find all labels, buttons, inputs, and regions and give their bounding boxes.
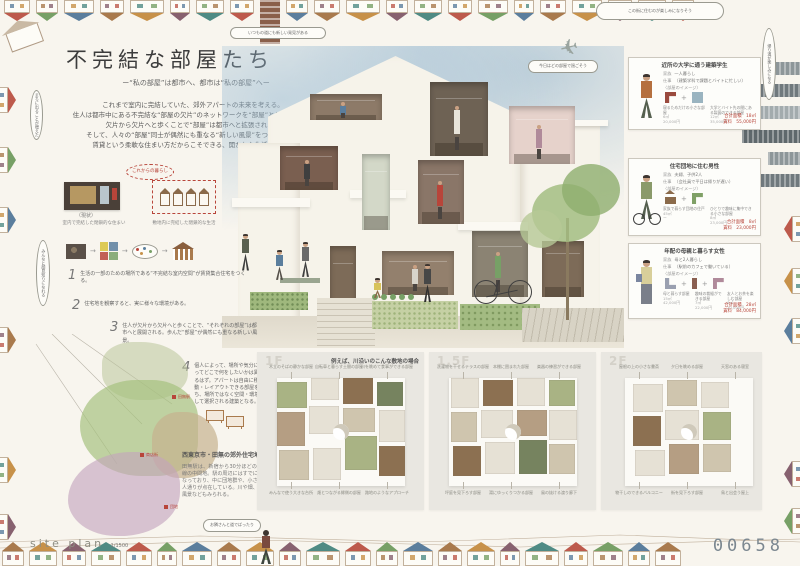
- palette-dot: [136, 248, 139, 251]
- mini-house-icon: [160, 188, 170, 206]
- person-body: [454, 110, 460, 134]
- room-piece-glyph: [665, 278, 676, 289]
- house-body: [346, 0, 380, 13]
- house-window: [15, 555, 19, 560]
- note-leader-line: [735, 372, 736, 379]
- house-body: [0, 207, 8, 233]
- room-shelf-line: [317, 100, 375, 101]
- main-illustration: [222, 46, 624, 348]
- border-side-house: [778, 212, 800, 242]
- attribute-value: （会社員で平日は帰りが遅い）: [674, 179, 733, 185]
- house-window: [641, 555, 645, 560]
- house-window: [46, 555, 51, 560]
- house-window: [1, 333, 5, 337]
- house-window: [671, 555, 675, 560]
- house-window: [1, 463, 5, 467]
- site-marker-dot: [172, 395, 176, 399]
- house-window: [569, 555, 573, 560]
- house-window: [202, 4, 207, 8]
- site-marker-label: 商店街: [146, 452, 158, 458]
- diagram-room-bed: [100, 186, 109, 204]
- house-window: [169, 555, 172, 560]
- doodle-leg: [208, 420, 209, 423]
- note-leader-line: [511, 482, 512, 489]
- attribute-value: 一人暮らし: [674, 71, 695, 77]
- house-window: [1, 473, 5, 477]
- house-body: [126, 551, 152, 566]
- courtyard-person: [372, 278, 383, 296]
- house-window: [512, 555, 515, 560]
- persona-title: 住宅団地に住む男性: [629, 162, 760, 170]
- house-roof: [314, 13, 340, 21]
- house-window: [7, 555, 11, 560]
- house-window: [77, 555, 81, 560]
- persona-figure: [635, 175, 659, 221]
- mini-house-roof: [199, 188, 209, 193]
- house-window: [590, 4, 595, 8]
- person-legs: [302, 261, 309, 277]
- house-window: [1, 103, 5, 107]
- house-window: [796, 334, 800, 338]
- house-body: [4, 0, 30, 13]
- room-pieces-row: ++: [665, 278, 724, 289]
- total-rent: 賃料 55,000円: [723, 120, 756, 126]
- house-window: [519, 4, 522, 8]
- house-window: [175, 4, 178, 8]
- plan-stair-core: [505, 424, 521, 440]
- house-roof: [8, 87, 16, 113]
- house-window: [796, 222, 800, 226]
- persona-title: 近所の大学に通う建築学生: [629, 61, 760, 69]
- house-body: [655, 551, 681, 566]
- note-leader-line: [463, 482, 464, 489]
- mini-house-icon: [186, 188, 196, 206]
- house-roof: [8, 327, 16, 353]
- person-torso: [302, 247, 309, 261]
- diagram-closed-room: [64, 182, 120, 210]
- figure-torso: [641, 267, 652, 284]
- potted-plant: [399, 294, 405, 300]
- house-body: [628, 551, 650, 566]
- house-window: [532, 555, 538, 560]
- plan-room: [343, 378, 373, 404]
- house-window: [796, 324, 800, 328]
- house-window: [556, 4, 560, 8]
- plan-room: [635, 450, 665, 476]
- house-roof: [346, 13, 380, 21]
- entry-number: 00658: [713, 536, 784, 556]
- room-shelf-line: [516, 119, 569, 120]
- house-body: [0, 147, 8, 173]
- note-leader-line: [687, 372, 688, 379]
- person-legs: [438, 207, 442, 219]
- courtyard-person: [240, 234, 251, 272]
- house-body: [525, 551, 559, 566]
- speech-bubble-left-top: まちに出ることが増えた: [30, 90, 43, 140]
- house-body: [0, 87, 8, 113]
- attribute-label: 家族: [663, 71, 671, 77]
- plan-note: 本棚に囲まれた部屋: [485, 364, 537, 369]
- mini-house-body: [173, 193, 183, 206]
- interior-room: [509, 106, 575, 164]
- bench: [280, 278, 320, 283]
- border-side-house: [0, 457, 22, 487]
- mini-house-icon: [173, 188, 183, 206]
- plan-room: [517, 410, 547, 436]
- house-body: [0, 514, 8, 540]
- step-text: 生活の一部のための場所である“不完結な室内空間”が賃貸集合住宅をつくる。: [80, 268, 248, 286]
- house-roof: [467, 542, 495, 551]
- house-body: [438, 551, 462, 566]
- house-window: [361, 555, 365, 560]
- person-legs: [537, 149, 541, 159]
- border-side-house: [0, 327, 22, 357]
- house-window: [109, 555, 114, 560]
- figure-legs: [641, 284, 652, 304]
- plan-room: [485, 442, 515, 474]
- persona-totals: 合計面積 8㎡賃料 23,000円: [723, 220, 756, 232]
- persona-title: 年配の母親と暮らす女性: [629, 247, 760, 255]
- border-side-house: [0, 87, 22, 117]
- house-body: [514, 0, 534, 13]
- plan-note: 街を見下ろす部屋: [661, 490, 713, 495]
- site-marker: 田無駅: [172, 394, 190, 400]
- house-window: [327, 555, 333, 560]
- house-window: [105, 4, 109, 8]
- attribute-label: 家族: [663, 257, 671, 263]
- house-window: [579, 555, 583, 560]
- border-side-house: [0, 147, 22, 177]
- furniture-doodle: [206, 410, 224, 421]
- house-window: [292, 555, 296, 560]
- floor-plan-panel-15f: 1.5F洗濯物を干せるテラスの部屋本棚に囲まれた部屋楽器の練習ができる部屋坪庭を…: [429, 352, 596, 510]
- site-plan-label: site plan 1/1500: [30, 537, 128, 550]
- border-side-house: [778, 457, 800, 487]
- mini-house-roof: [186, 188, 196, 193]
- site-marker: 商店街: [140, 452, 158, 458]
- step-item: 1生活の一部のための場所である“不完結な室内空間”が賃貸集合住宅をつくる。: [68, 268, 248, 286]
- plan-room: [379, 410, 405, 442]
- speech-bubble-house: いつもの道にも新しい発見がある: [230, 27, 326, 39]
- house-window: [443, 555, 447, 560]
- room-piece-glyph: [692, 278, 697, 289]
- house-roof: [306, 542, 340, 551]
- plan-note: 夕日を眺める部屋: [661, 364, 713, 369]
- house-body: [540, 0, 566, 13]
- house-sketch-body: [173, 249, 193, 260]
- speech-bubble-right-text: 帰り道が楽しみになる: [767, 44, 772, 84]
- person-body: [437, 185, 443, 206]
- house-window: [1, 153, 5, 157]
- total-area: 合計面積 28㎡: [723, 303, 756, 309]
- person-torso: [262, 536, 270, 548]
- plan-room: [519, 440, 547, 474]
- room-pieces-row: +: [665, 92, 703, 103]
- attribute-value: 夫婦、子供2人: [674, 172, 702, 178]
- house-body: [593, 551, 623, 566]
- persona-card: 住宅団地に住む男性家族夫婦、子供2人仕事（会社員で平日は帰りが遅い）〈部屋のイメ…: [628, 158, 761, 236]
- attribute-label: 仕事: [663, 179, 671, 185]
- border-skyscraper-icon: [758, 106, 800, 119]
- plan-note: 川を眺めて食事ができる部屋: [361, 364, 413, 369]
- plan-room: [279, 450, 309, 480]
- house-window: [611, 555, 616, 560]
- note-leader-line: [387, 372, 388, 379]
- house-window: [661, 555, 665, 560]
- person-torso: [424, 269, 431, 284]
- house-window: [796, 524, 800, 528]
- note-leader-line: [291, 482, 292, 489]
- cantilever-slab: [458, 222, 528, 230]
- deck-paving: [522, 308, 624, 342]
- total-rent: 賃料 84,000円: [723, 309, 756, 315]
- diagram-closed-site: [152, 180, 216, 214]
- house-body: [29, 551, 57, 566]
- note-leader-line: [559, 372, 560, 379]
- house-roof: [130, 13, 164, 21]
- total-rent: 賃料 23,000円: [723, 226, 756, 232]
- house-body: [792, 508, 800, 534]
- house-body: [448, 0, 472, 13]
- house-roof: [655, 542, 681, 551]
- house-roof: [593, 542, 623, 551]
- persona-attribute-row: 仕事（駅前のカフェで働いている）: [663, 264, 757, 270]
- house-window: [1, 530, 5, 534]
- house-roof: [540, 13, 566, 21]
- house-body: [478, 0, 508, 13]
- house-body: [792, 318, 800, 344]
- speech-bubble-left-top-text: まちに出ることが増えた: [34, 93, 39, 137]
- house-window: [546, 555, 552, 560]
- palette-diagram: [132, 244, 158, 259]
- house-window: [162, 555, 165, 560]
- room-piece-glyph: [665, 92, 676, 103]
- house-window: [463, 4, 467, 8]
- site-marker-label: 田無駅: [178, 394, 190, 400]
- house-window: [391, 4, 395, 8]
- house-window: [232, 555, 236, 560]
- plan-room: [451, 378, 479, 408]
- interior-person: [339, 102, 347, 118]
- house-window: [71, 4, 76, 8]
- doodle-leg: [221, 420, 222, 423]
- house-body: [64, 0, 94, 13]
- house-window: [526, 4, 529, 8]
- interior-person: [303, 160, 311, 186]
- house-window: [496, 4, 501, 8]
- room-furniture: [364, 216, 388, 230]
- room-piece-glyph: [692, 193, 703, 204]
- plan-note: 物干しのできるバルコニー: [613, 490, 665, 495]
- diagram-closed-room-caption: 室内で完結した閉鎖的な住まい: [56, 221, 132, 227]
- note-leader-line: [559, 482, 560, 489]
- floor-plan-drawing: [277, 378, 405, 486]
- room-piece-caption: 家族で暮らす団地の住戸45㎡ー: [663, 207, 707, 221]
- planter-bed: [250, 292, 308, 310]
- house-body: [376, 551, 398, 566]
- person-legs: [305, 179, 309, 187]
- floor-plan-panel-2f: 2F屋根の上の小さな書斎夕日を眺める部屋天窓のある寝室物干しのできるバルコニー街…: [601, 352, 762, 510]
- house-body: [0, 457, 8, 483]
- figure-torso: [641, 182, 652, 199]
- attribute-value: （建築学科で課題とバイトに忙しい）: [674, 78, 745, 84]
- house-body: [217, 551, 241, 566]
- house-roof: [478, 13, 508, 21]
- house-window: [420, 4, 425, 8]
- palette-dot: [149, 250, 152, 253]
- room-piece-glyph: [665, 193, 676, 204]
- border-skyscraper-icon: [768, 152, 800, 165]
- border-side-house: [778, 314, 800, 344]
- house-roof: [784, 318, 792, 344]
- house-body: [0, 327, 8, 353]
- room-image-label: 〈部屋のイメージ〉: [663, 85, 701, 91]
- house-window: [182, 4, 185, 8]
- room-piece-caption: 寝るためだけの小さな部屋6㎡20,000円: [663, 106, 707, 125]
- plan-room: [451, 412, 477, 442]
- house-window: [796, 274, 800, 278]
- interior-person: [436, 181, 444, 219]
- plan-room: [517, 378, 545, 406]
- note-leader-line: [687, 482, 688, 489]
- house-window: [410, 555, 415, 560]
- house-window: [82, 4, 87, 8]
- attribute-value: 母と2人暮らし: [674, 257, 702, 263]
- plan-note: 湯にゆっくりつかる部屋: [485, 490, 537, 495]
- room-shelf-line: [436, 98, 482, 99]
- house-roof: [8, 147, 16, 173]
- attribute-label: 仕事: [663, 264, 671, 270]
- site-marker-dot: [164, 505, 168, 509]
- plan-room: [379, 446, 405, 476]
- arrow-icon: →: [162, 247, 168, 255]
- courtyard-person: [300, 242, 311, 278]
- plan-room: [701, 382, 729, 408]
- plan-note: 風の抜ける渡り廊下: [533, 490, 585, 495]
- note-leader-line: [387, 482, 388, 489]
- house-body: [2, 551, 24, 566]
- floor-plan-panel-1f: 1F例えば、川沿いのこんな敷地の場合木立のそばの静かな部屋自転車と暮らす土間の部…: [257, 352, 424, 510]
- house-window: [299, 4, 303, 8]
- house-window: [222, 555, 226, 560]
- house-window: [41, 4, 45, 8]
- person-legs: [455, 137, 459, 150]
- note-leader-line: [639, 482, 640, 489]
- figure-hair: [643, 74, 650, 77]
- step1-diagram-row: →→→: [66, 238, 236, 264]
- plan-note: 畑とつながる縁側の部屋: [313, 490, 365, 495]
- plan-room: [311, 378, 339, 400]
- speech-bubble-top-right: この街に住むのが楽しみになりそう: [596, 2, 724, 20]
- plan-note: 自転車と暮らす土間の部屋: [313, 364, 365, 369]
- room-shelf-line: [333, 263, 354, 264]
- fragment-cell: [109, 252, 118, 261]
- house-roof: [514, 13, 534, 21]
- persona-totals: 合計面積 28㎡賃料 84,000円: [723, 303, 756, 315]
- house-window: [546, 4, 550, 8]
- persona-attribute-row: 仕事（会社員で平日は帰りが遅い）: [663, 179, 757, 185]
- house-window: [796, 514, 800, 518]
- tree-foliage: [520, 210, 562, 248]
- interior-person: [453, 106, 461, 150]
- plan-room: [345, 436, 377, 470]
- site-plan-scale: 1/1500: [111, 543, 129, 549]
- interior-room: [418, 160, 464, 224]
- plan-note: 坪庭を見下ろす部屋: [437, 490, 489, 495]
- house-window: [453, 4, 457, 8]
- house-body: [564, 551, 588, 566]
- room-shelf-line: [365, 171, 387, 172]
- note-leader-line: [291, 372, 292, 379]
- house-roof: [448, 13, 472, 21]
- figure-hair: [643, 175, 650, 178]
- fragment-cell: [100, 242, 109, 251]
- bicycle-icon: [474, 272, 532, 304]
- house-window: [320, 4, 324, 8]
- figure-bike-wheel: [649, 213, 661, 225]
- doodle-leg: [241, 426, 242, 429]
- person-legs: [341, 113, 345, 118]
- doodle-leg: [228, 426, 229, 429]
- house-window: [200, 555, 205, 560]
- house-body: [157, 551, 177, 566]
- persona-attribute-row: 家族母と2人暮らし: [663, 257, 757, 263]
- person-torso: [242, 239, 249, 253]
- room-image-label: 〈部屋のイメージ〉: [663, 271, 701, 277]
- house-roof: [8, 514, 16, 540]
- floor-plan-drawing: [449, 378, 577, 486]
- house-window: [600, 555, 605, 560]
- house-window: [245, 4, 249, 8]
- house-window: [137, 4, 143, 8]
- house-window: [381, 555, 385, 560]
- piece-price: 42,000円: [663, 301, 692, 306]
- plan-room: [313, 448, 341, 480]
- house-window: [151, 4, 157, 8]
- room-shelf-line: [546, 253, 580, 254]
- house-body: [792, 216, 800, 242]
- house-window: [505, 555, 508, 560]
- house-body: [286, 0, 308, 13]
- house-window: [284, 555, 288, 560]
- border-side-house: [778, 504, 800, 534]
- room-shelf-line: [286, 156, 332, 157]
- room-piece-glyph: [713, 278, 724, 289]
- interior-room: [382, 251, 454, 295]
- house-window: [313, 555, 319, 560]
- plus-icon: +: [681, 94, 687, 102]
- plan-room: [669, 444, 699, 474]
- persona-totals: 合計面積 18㎡賃料 55,000円: [723, 114, 756, 126]
- house-roof: [784, 508, 792, 534]
- persona-card: 近所の大学に通う建築学生家族一人暮らし仕事（建築学科で課題とバイトに忙しい）〈部…: [628, 57, 761, 130]
- diagram-closed-site-caption: 敷地内に完結した閉鎖的な生活: [146, 221, 222, 227]
- house-window: [579, 4, 584, 8]
- floor-plan-drawing: [625, 378, 753, 486]
- house-window: [1, 93, 5, 97]
- fragment-cell: [100, 252, 109, 261]
- persona-attribute-row: 家族夫婦、子供2人: [663, 172, 757, 178]
- house-window: [353, 4, 359, 8]
- piece-caption-text: 寝るためだけの小さな部屋: [663, 106, 707, 115]
- house-window: [330, 4, 334, 8]
- courtyard-person: [274, 250, 285, 280]
- house-roof: [386, 13, 408, 21]
- persona-card: 年配の母親と暮らす女性家族母と2人暮らし仕事（駅前のカフェで働いている）〈部屋の…: [628, 243, 761, 319]
- plan-room: [633, 384, 663, 412]
- note-leader-line: [639, 372, 640, 379]
- house-roof: [100, 13, 124, 21]
